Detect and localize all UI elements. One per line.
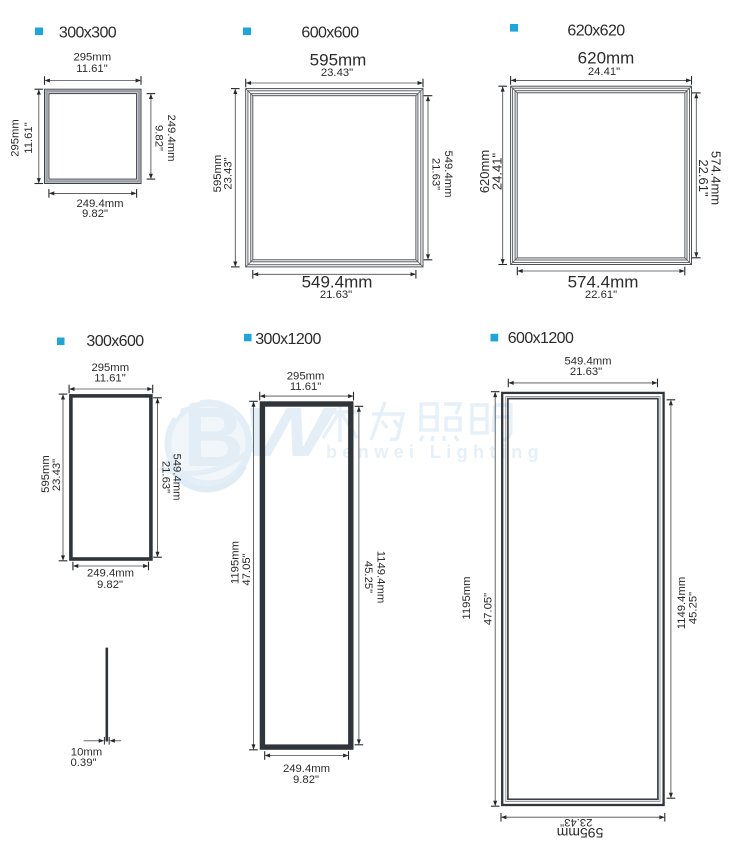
svg-text:1195mm: 1195mm — [229, 541, 241, 584]
svg-text:23.43": 23.43" — [222, 157, 234, 189]
svg-text:600x1200: 600x1200 — [508, 330, 574, 347]
svg-text:23.43": 23.43" — [321, 67, 353, 79]
svg-text:249.4mm: 249.4mm — [165, 114, 177, 161]
svg-text:23.43": 23.43" — [51, 459, 63, 491]
svg-text:9.82": 9.82" — [152, 125, 164, 151]
svg-text:620mm: 620mm — [578, 48, 635, 67]
svg-text:1149.4mm: 1149.4mm — [374, 551, 386, 604]
svg-text:22.61": 22.61" — [696, 159, 711, 197]
svg-text:0.39": 0.39" — [71, 757, 97, 769]
svg-text:595mm: 595mm — [40, 455, 52, 493]
svg-text:595mm: 595mm — [557, 825, 604, 841]
svg-text:600x600: 600x600 — [301, 25, 359, 42]
svg-text:9.82": 9.82" — [97, 579, 123, 591]
svg-text:1195mm: 1195mm — [461, 576, 473, 619]
svg-text:300x600: 300x600 — [86, 333, 144, 350]
svg-text:249.4mm: 249.4mm — [283, 763, 330, 775]
svg-text:11.61": 11.61" — [23, 122, 35, 153]
svg-text:295mm: 295mm — [10, 119, 22, 157]
svg-text:24.41": 24.41" — [588, 66, 620, 78]
svg-text:47.05": 47.05" — [241, 553, 253, 585]
svg-text:47.05": 47.05" — [483, 593, 495, 625]
svg-text:11.61": 11.61" — [76, 63, 107, 75]
svg-text:21.63": 21.63" — [570, 366, 602, 378]
svg-text:295mm: 295mm — [73, 52, 111, 64]
svg-text:300x1200: 300x1200 — [255, 331, 321, 348]
svg-text:21.63": 21.63" — [320, 289, 352, 301]
svg-text:22.61": 22.61" — [585, 289, 617, 301]
svg-text:11.61": 11.61" — [290, 381, 321, 393]
svg-text:11.61": 11.61" — [94, 372, 125, 384]
svg-text:45.25": 45.25" — [688, 592, 700, 624]
svg-text:1149.4mm: 1149.4mm — [676, 577, 688, 630]
svg-text:21.63": 21.63" — [159, 461, 171, 493]
svg-text:21.63": 21.63" — [429, 158, 441, 190]
svg-text:45.25": 45.25" — [362, 561, 374, 593]
svg-text:24.41": 24.41" — [490, 153, 505, 191]
svg-text:249.4mm: 249.4mm — [87, 567, 134, 579]
svg-text:300x300: 300x300 — [59, 24, 117, 41]
svg-text:9.82": 9.82" — [82, 208, 108, 220]
svg-text:9.82": 9.82" — [293, 774, 319, 786]
svg-text:620x620: 620x620 — [567, 23, 625, 40]
svg-text:549.4mm: 549.4mm — [442, 150, 454, 197]
